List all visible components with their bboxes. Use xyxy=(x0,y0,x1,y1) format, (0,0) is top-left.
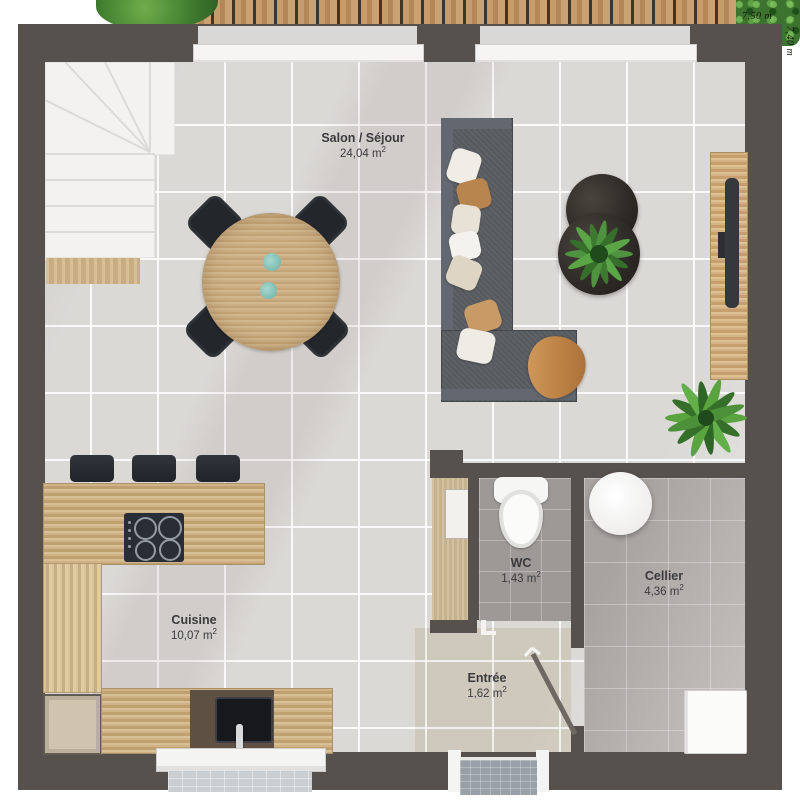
table-bowl xyxy=(260,282,277,299)
room-area-value: 4,36 m xyxy=(644,586,679,598)
wood-deck xyxy=(148,0,742,26)
tv-screen xyxy=(725,178,739,308)
kitchen-counter-left xyxy=(43,563,102,693)
room-area-value: 1,43 m xyxy=(501,573,536,585)
kitchen-window-glass xyxy=(168,770,312,792)
staircase xyxy=(45,62,175,258)
closet-shelf xyxy=(445,489,469,539)
coffee-table-large xyxy=(558,213,640,295)
room-area-sup: 2 xyxy=(213,627,217,636)
wall-right xyxy=(745,24,782,790)
room-name: Entrée xyxy=(467,671,507,685)
room-area-sup: 2 xyxy=(679,583,683,592)
cooktop-knobs xyxy=(128,521,131,524)
room-name: Salon / Séjour xyxy=(321,131,404,145)
wall-wc-bottom xyxy=(430,620,477,633)
kitchen-cabinet xyxy=(43,694,102,755)
room-name: Cuisine xyxy=(171,613,217,627)
wall-left xyxy=(18,24,45,790)
cooktop-burner xyxy=(134,517,157,540)
room-area: 10,07 m2 xyxy=(171,627,217,643)
wall-bottom xyxy=(18,752,782,790)
room-label-cellier: Cellier 4,36 m2 xyxy=(644,569,684,599)
bar-stool xyxy=(196,455,240,482)
wc-door-frame-mark-h xyxy=(481,631,496,635)
sink-basin xyxy=(215,697,273,743)
cooktop-burner xyxy=(159,539,181,561)
wood-floor-under-stairs xyxy=(46,258,140,284)
window-bay-left-frame xyxy=(198,26,417,46)
staircase-body xyxy=(45,62,175,258)
room-area: 24,04 m2 xyxy=(321,145,404,161)
dimension-width: 7,50 m xyxy=(742,11,772,22)
room-label-cuisine: Cuisine 10,07 m2 xyxy=(171,613,217,643)
sink-faucet xyxy=(236,724,243,750)
room-label-entree: Entrée 1,62 m2 xyxy=(467,671,507,701)
bar-stool xyxy=(70,455,114,482)
wall-wc-left xyxy=(468,478,479,620)
wall-wc-cellier-right xyxy=(571,478,584,648)
dimension-height: 7,40 m xyxy=(784,26,795,56)
window-bay-right-frame xyxy=(480,26,690,46)
room-area-value: 24,04 m xyxy=(340,148,382,160)
room-area-sup: 2 xyxy=(382,145,386,154)
wall-stub-hall xyxy=(430,450,463,478)
wall-cellier-door-stub xyxy=(571,726,584,752)
room-area-sup: 2 xyxy=(502,685,506,694)
room-label-salon: Salon / Séjour 24,04 m2 xyxy=(321,131,404,161)
room-label-wc: WC 1,43 m2 xyxy=(501,556,541,586)
cooktop-burner xyxy=(135,540,156,561)
floor-plan-canvas: Salon / Séjour 24,04 m2 Cuisine 10,07 m2… xyxy=(0,0,800,800)
room-area: 1,43 m2 xyxy=(501,570,541,586)
water-heater xyxy=(589,472,652,535)
bar-stool xyxy=(132,455,176,482)
front-door-leaf xyxy=(460,757,537,795)
front-door-frame-right xyxy=(536,750,549,792)
room-area: 1,62 m2 xyxy=(467,685,507,701)
room-area-value: 1,62 m xyxy=(467,688,502,700)
cooktop-burner xyxy=(158,516,182,540)
room-name: WC xyxy=(501,556,541,570)
room-area-sup: 2 xyxy=(536,570,540,579)
table-bowl xyxy=(263,253,281,271)
room-area-value: 10,07 m xyxy=(171,630,213,642)
kitchen-window-sill xyxy=(156,748,326,772)
sofa-armrest-top xyxy=(441,118,511,129)
room-name: Cellier xyxy=(644,569,684,583)
room-area: 4,36 m2 xyxy=(644,583,684,599)
washing-machine xyxy=(684,690,747,754)
